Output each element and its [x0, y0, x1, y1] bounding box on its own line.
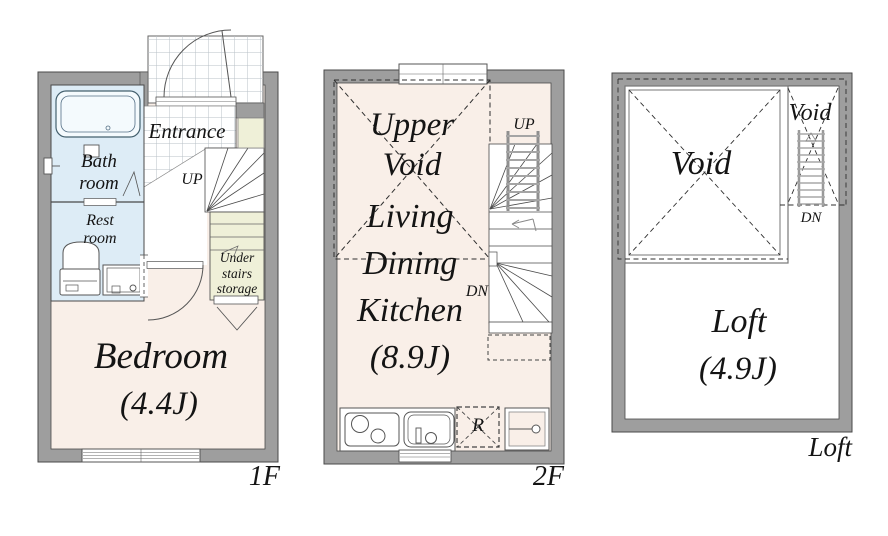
stove-symbol — [345, 413, 399, 446]
bathroom-label: Bath room — [55, 151, 143, 195]
ldk-label-line2: Dining — [330, 240, 490, 287]
bedroom-size-label: (4.4J) — [58, 385, 260, 423]
ldk-label-line4: (8.9J) — [330, 334, 490, 381]
washbasin-symbol — [103, 265, 144, 295]
up-label-1f: UP — [174, 171, 210, 189]
restroom-label: Rest room — [58, 212, 142, 248]
floor-label-2f: 2F — [512, 462, 564, 492]
upper-void-label-line2: Void — [347, 145, 477, 185]
refrigerator-label: R — [457, 414, 499, 438]
washing-machine-symbol — [505, 408, 549, 450]
floor-label-1f: 1F — [226, 462, 280, 492]
floor-label-loft: Loft — [768, 433, 852, 462]
kitchen-counter — [340, 408, 455, 451]
void-large-label: Void — [641, 144, 761, 184]
window-1f-south — [82, 449, 200, 462]
window-2f-south — [399, 450, 451, 462]
understairs-storage-label: Under stairs storage — [205, 250, 269, 297]
ldk-label-line1: Living — [330, 193, 490, 240]
restroom-label-line2: room — [58, 230, 142, 248]
loft-room-label: Loft — [675, 302, 803, 342]
bathtub-symbol — [56, 91, 140, 137]
void-small-label: Void — [778, 101, 842, 125]
bath-threshold — [84, 199, 116, 206]
up-label-2f: UP — [506, 116, 542, 134]
staircase-1f — [205, 148, 264, 212]
storage-label-line3: storage — [205, 281, 269, 297]
restroom-label-line1: Rest — [58, 212, 142, 230]
stair-upper-landing — [238, 118, 264, 148]
dn-label-loft: DN — [793, 210, 829, 227]
entrance-label: Entrance — [137, 120, 237, 142]
floorplan-page: Entrance Bath room Rest room UP Under st… — [0, 0, 888, 536]
dn-label-2f: DN — [459, 283, 495, 301]
storage-label-line2: stairs — [205, 266, 269, 282]
window-2f-north — [399, 64, 487, 84]
storage-label-line1: Under — [205, 250, 269, 266]
bathroom-label-line2: room — [55, 173, 143, 195]
toilet-symbol — [60, 242, 100, 295]
storage-threshold — [214, 296, 258, 304]
loft-size-label: (4.9J) — [672, 350, 804, 388]
entrance-porch — [140, 30, 264, 118]
upper-void-label-line1: Upper — [347, 105, 477, 145]
kitchen-sink-symbol — [404, 412, 454, 447]
upper-void-label: Upper Void — [347, 105, 477, 185]
staircase-2f — [489, 144, 552, 333]
bathroom-label-line1: Bath — [55, 151, 143, 173]
bedroom-label: Bedroom — [59, 336, 263, 378]
